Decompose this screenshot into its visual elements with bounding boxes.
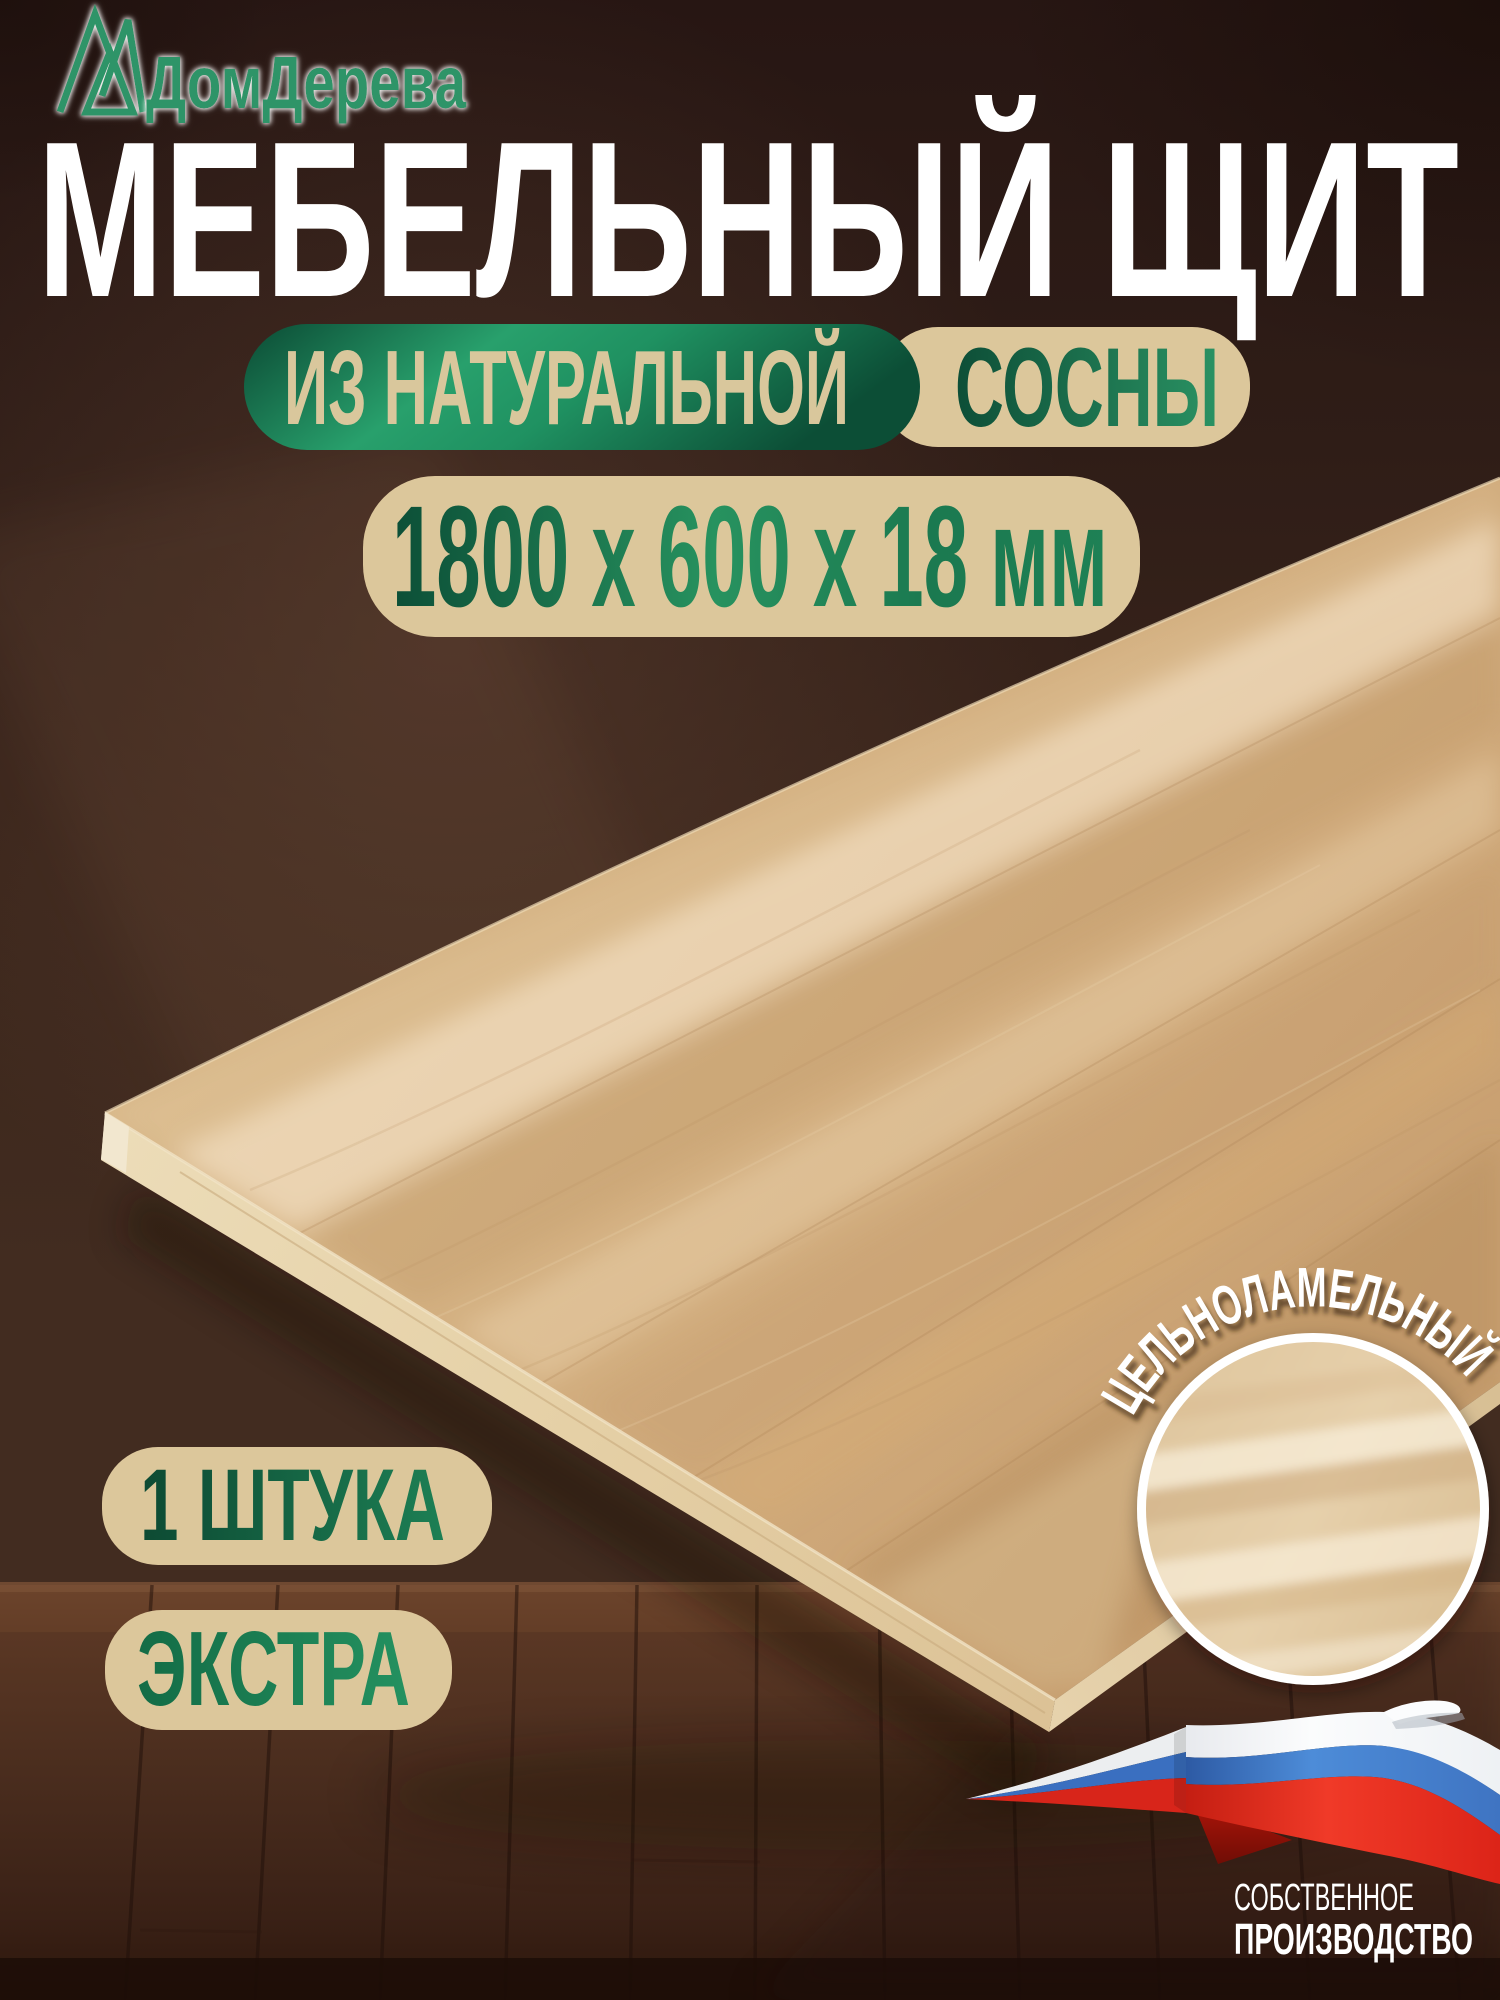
svg-text:ЭКСТРА: ЭКСТРА [137, 1610, 410, 1728]
svg-text:МЕБЕЛЬНЫЙ ЩИТ: МЕБЕЛЬНЫЙ ЩИТ [37, 94, 1459, 344]
svg-text:1 ШТУКА: 1 ШТУКА [140, 1448, 445, 1562]
svg-text:ИЗ НАТУРАЛЬНОЙ: ИЗ НАТУРАЛЬНОЙ [284, 328, 849, 447]
svg-text:ПРОИЗВОДСТВО: ПРОИЗВОДСТВО [1234, 1915, 1473, 1964]
svg-text:СОБСТВЕННОЕ: СОБСТВЕННОЕ [1234, 1877, 1414, 1919]
svg-text:СОСНЫ: СОСНЫ [955, 325, 1219, 450]
svg-text:1800 х 600 х 18 мм: 1800 х 600 х 18 мм [392, 476, 1108, 637]
